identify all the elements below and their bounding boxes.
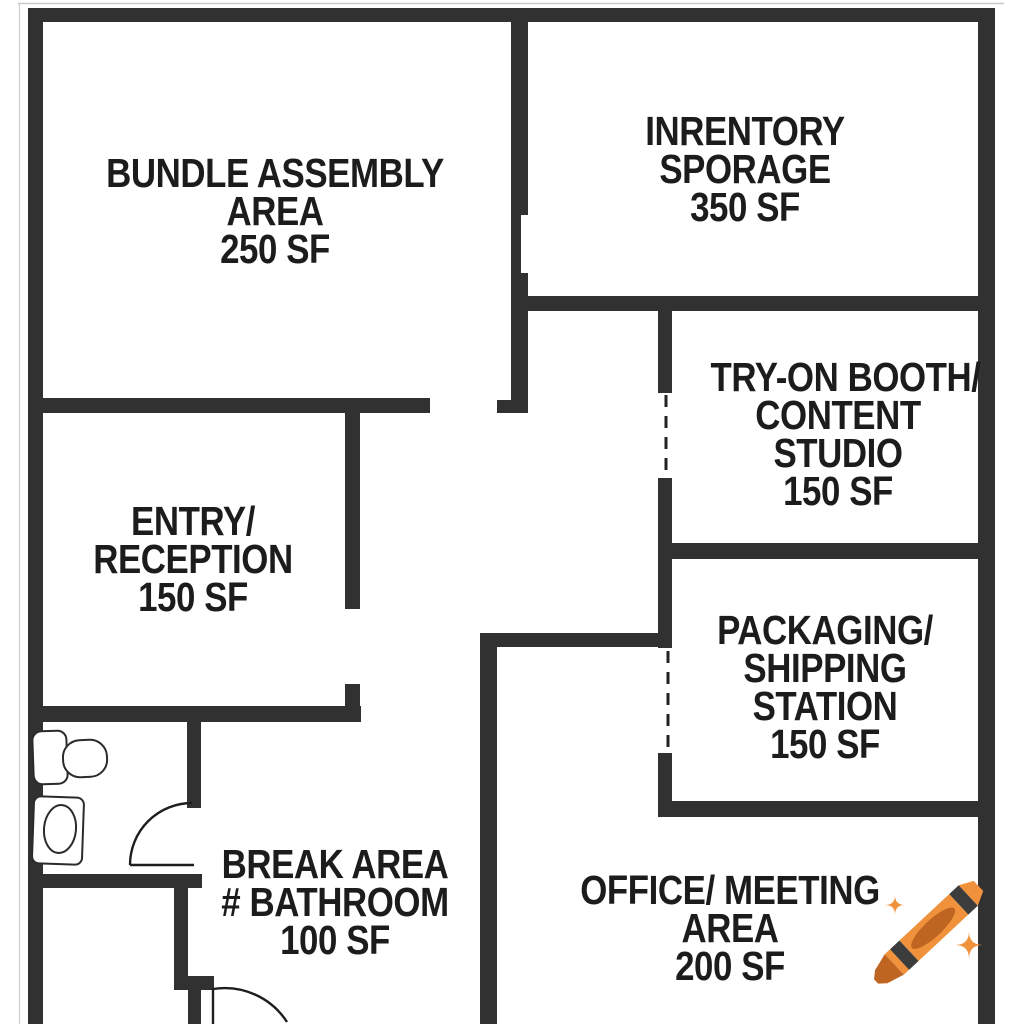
sparkle-icon: [955, 931, 983, 959]
sparkle-icon: [885, 895, 905, 915]
plan-symbols-layer: [0, 0, 1024, 1024]
door-arc-breakroom: [213, 988, 287, 1022]
toilet-bowl: [62, 739, 108, 778]
door-arc-bathroom: [130, 803, 192, 865]
floor-plan: BUNDLE ASSEMBLY AREA 250 SF INRENTORY SP…: [0, 0, 1024, 1024]
toilet-icon: [32, 730, 108, 784]
sink-icon: [32, 796, 84, 865]
crayon-icon: [867, 876, 988, 992]
